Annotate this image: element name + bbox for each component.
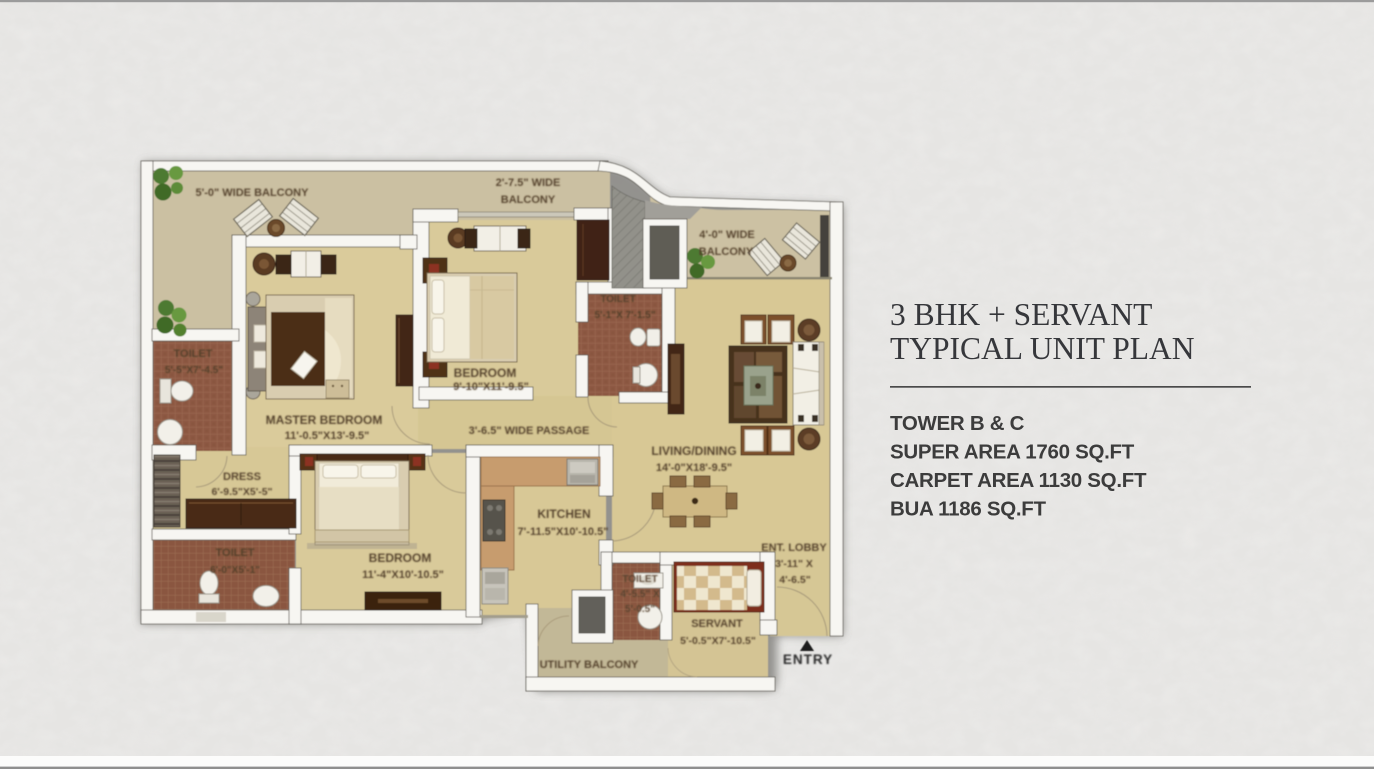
svg-text:ENTRY: ENTRY bbox=[783, 652, 833, 667]
svg-text:TOILET: TOILET bbox=[622, 574, 657, 585]
svg-text:BALCONY: BALCONY bbox=[501, 194, 556, 206]
svg-text:DRESS: DRESS bbox=[223, 471, 261, 483]
svg-text:4'-6.5": 4'-6.5" bbox=[779, 574, 810, 586]
svg-text:BEDROOM: BEDROOM bbox=[454, 366, 517, 380]
svg-text:5'-0.5": 5'-0.5" bbox=[625, 604, 655, 615]
svg-text:14'-0"X18'-9.5": 14'-0"X18'-9.5" bbox=[656, 462, 732, 474]
svg-text:TOILET: TOILET bbox=[174, 348, 213, 360]
svg-text:TOWER B & C: TOWER B & C bbox=[890, 412, 1025, 435]
svg-text:11'-4"X10'-10.5": 11'-4"X10'-10.5" bbox=[362, 569, 444, 581]
svg-text:BUA 1186 SQ.FT: BUA 1186 SQ.FT bbox=[890, 498, 1046, 521]
svg-text:ENT. LOBBY: ENT. LOBBY bbox=[761, 542, 827, 554]
svg-text:5'-0" WIDE BALCONY: 5'-0" WIDE BALCONY bbox=[196, 187, 310, 199]
svg-text:SUPER AREA 1760 SQ.FT: SUPER AREA 1760 SQ.FT bbox=[890, 441, 1135, 464]
svg-text:6'-0"X5'-1": 6'-0"X5'-1" bbox=[210, 565, 260, 576]
svg-text:11'-0.5"X13'-9.5": 11'-0.5"X13'-9.5" bbox=[285, 430, 370, 442]
svg-text:5'-1"X 7'-1.5": 5'-1"X 7'-1.5" bbox=[595, 310, 656, 321]
svg-text:BEDROOM: BEDROOM bbox=[369, 551, 432, 565]
svg-text:4'-0" WIDE: 4'-0" WIDE bbox=[699, 229, 755, 241]
svg-text:3 BHK + SERVANT: 3 BHK + SERVANT bbox=[890, 297, 1152, 332]
svg-text:2'-7.5" WIDE: 2'-7.5" WIDE bbox=[496, 177, 561, 189]
svg-text:CARPET AREA 1130 SQ.FT: CARPET AREA 1130 SQ.FT bbox=[890, 469, 1147, 492]
svg-text:TYPICAL UNIT PLAN: TYPICAL UNIT PLAN bbox=[890, 331, 1195, 366]
svg-text:SERVANT: SERVANT bbox=[691, 618, 743, 630]
svg-text:LIVING/DINING: LIVING/DINING bbox=[651, 444, 736, 458]
svg-text:MASTER BEDROOM: MASTER BEDROOM bbox=[266, 413, 383, 427]
svg-text:UTILITY BALCONY: UTILITY BALCONY bbox=[540, 659, 639, 671]
svg-text:TOILET: TOILET bbox=[600, 294, 635, 305]
svg-text:9'-10"X11'-9.5": 9'-10"X11'-9.5" bbox=[453, 381, 529, 393]
svg-text:5'-5"X7'-4.5": 5'-5"X7'-4.5" bbox=[165, 365, 223, 376]
svg-text:BALCONY: BALCONY bbox=[699, 246, 754, 258]
svg-text:7'-11.5"X10'-10.5": 7'-11.5"X10'-10.5" bbox=[518, 526, 609, 538]
svg-text:4'-5.5" X: 4'-5.5" X bbox=[620, 589, 660, 600]
svg-text:3'-6.5" WIDE PASSAGE: 3'-6.5" WIDE PASSAGE bbox=[469, 425, 590, 437]
svg-text:6'-9.5"X5'-5": 6'-9.5"X5'-5" bbox=[211, 486, 272, 498]
svg-text:TOILET: TOILET bbox=[216, 547, 255, 559]
svg-text:3'-11" X: 3'-11" X bbox=[775, 558, 813, 570]
svg-text:KITCHEN: KITCHEN bbox=[537, 507, 590, 521]
svg-text:5'-0.5"X7'-10.5": 5'-0.5"X7'-10.5" bbox=[680, 635, 756, 647]
